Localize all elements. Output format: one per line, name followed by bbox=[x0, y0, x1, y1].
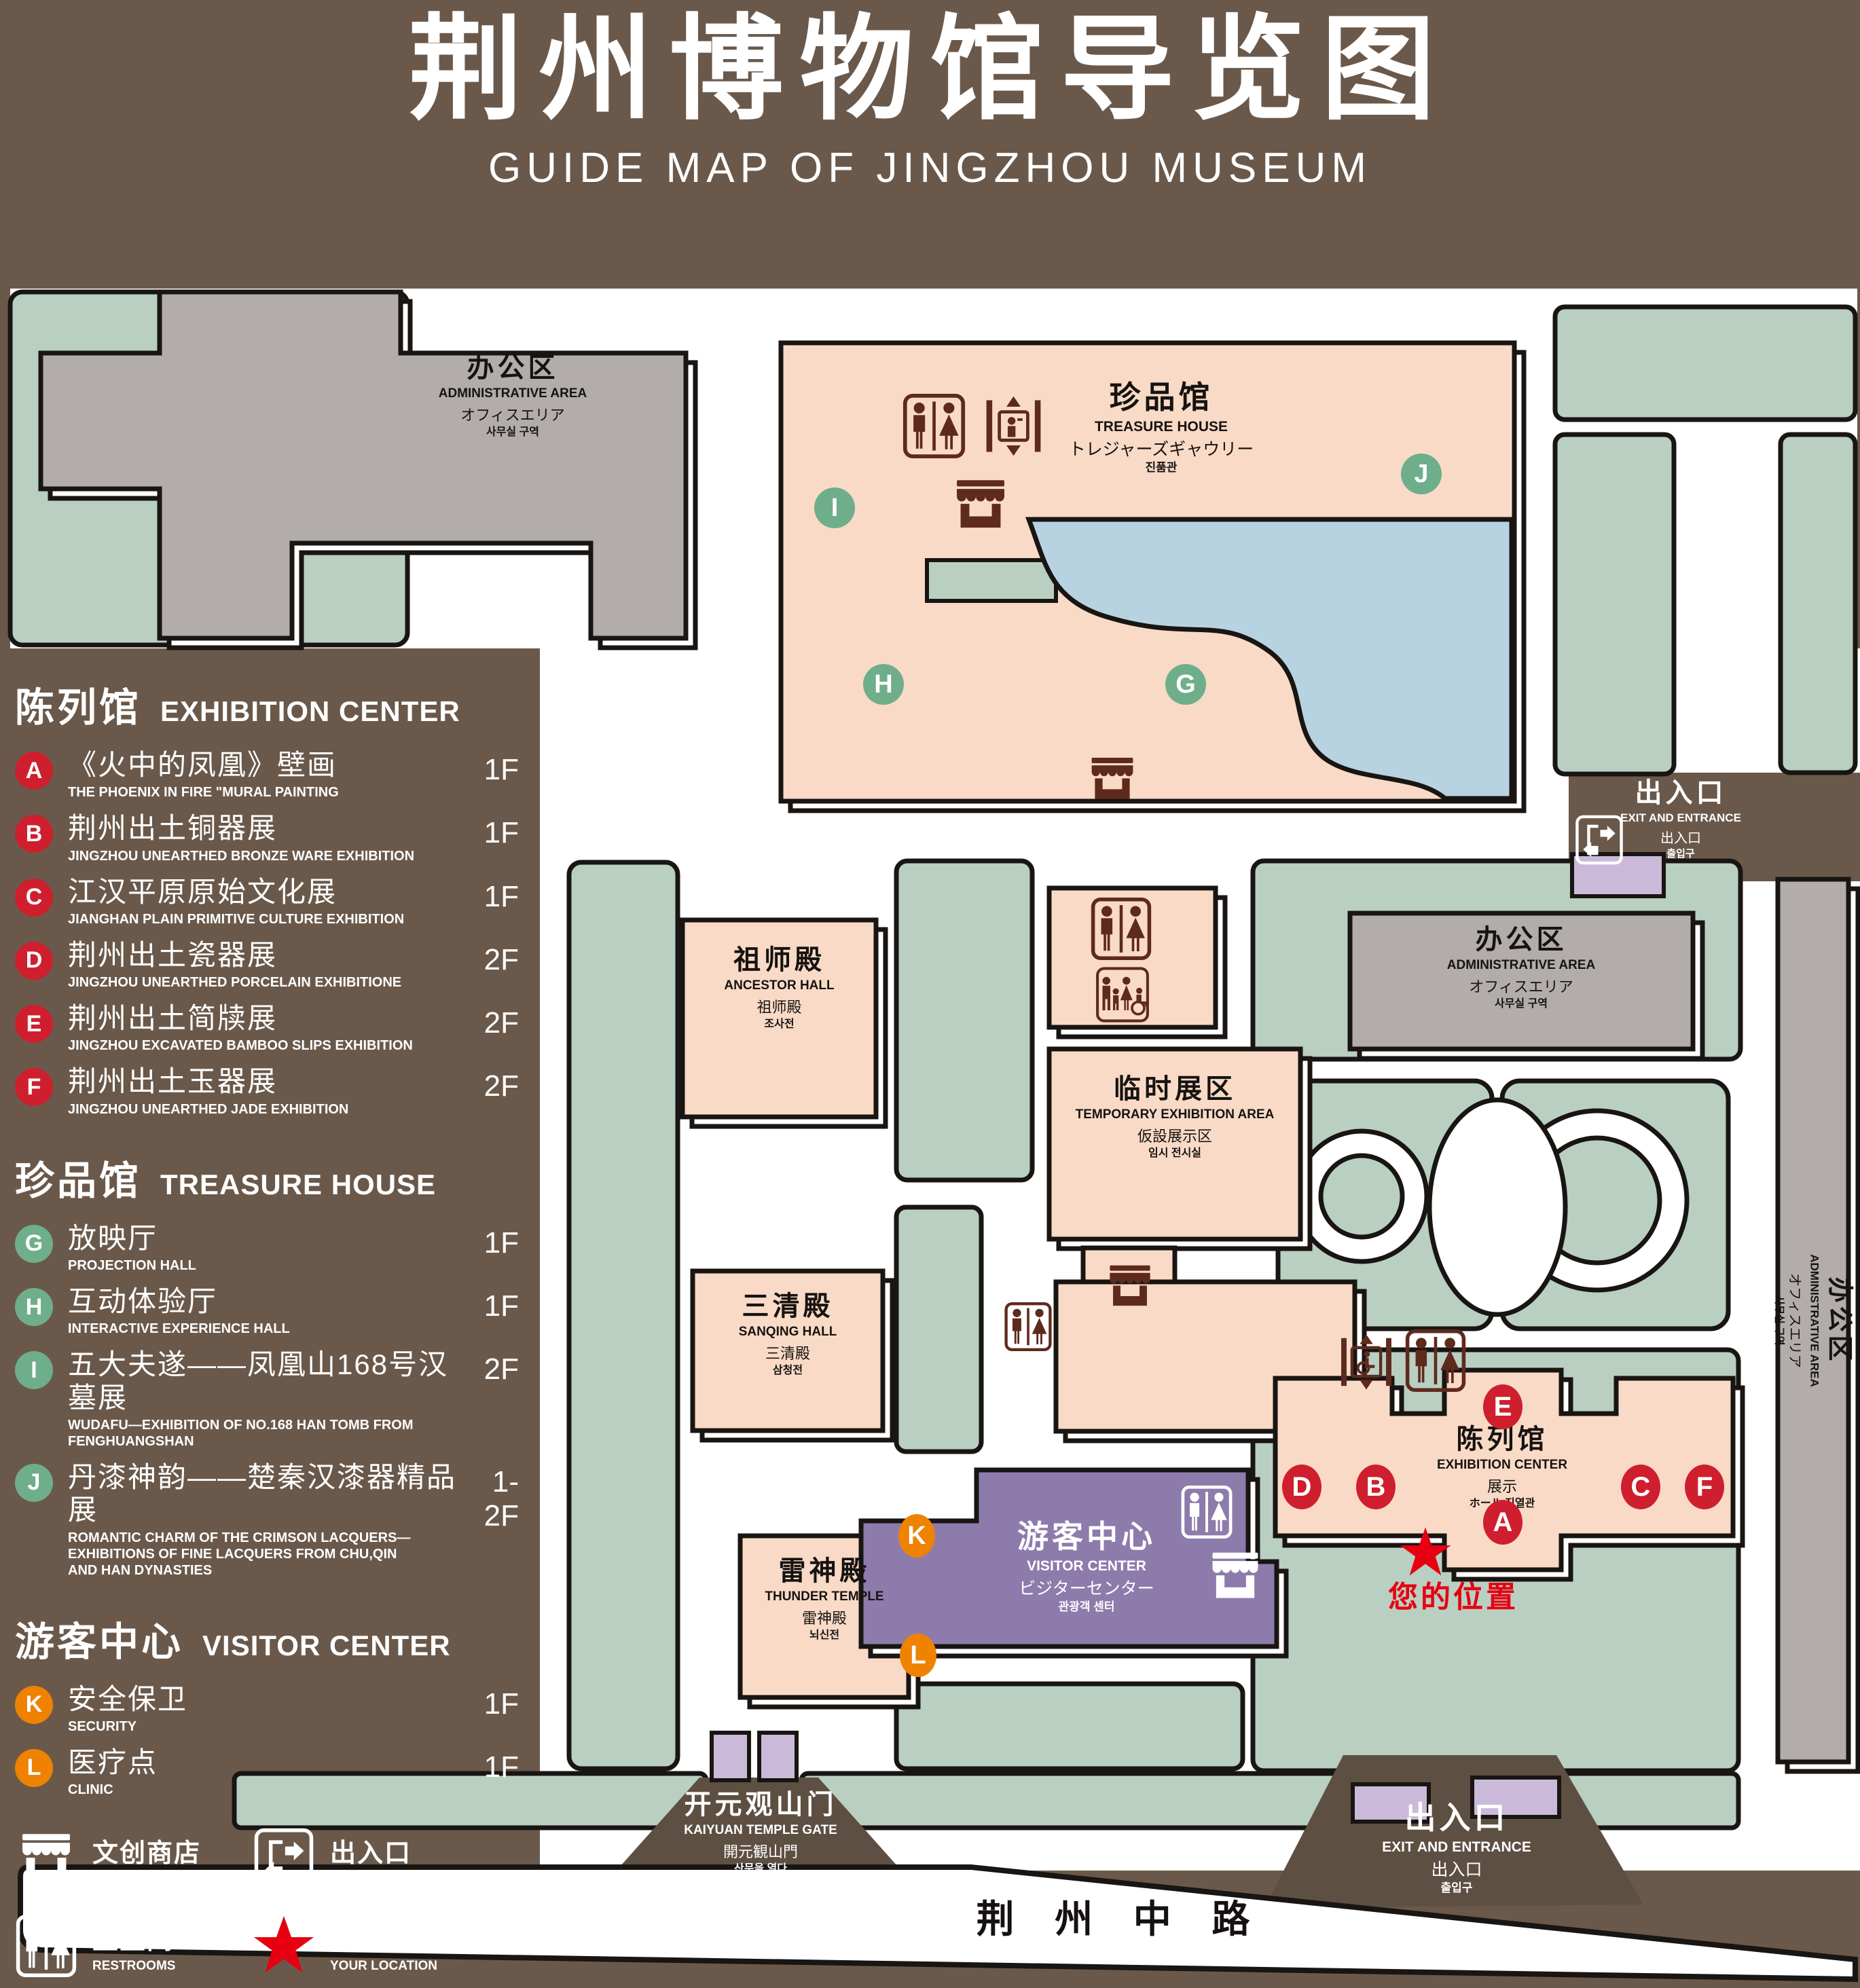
symbol-restrooms: 卫生间 RESTROOMS bbox=[15, 1915, 253, 1977]
marker-badge-L: L bbox=[15, 1749, 53, 1787]
map-marker-C: C bbox=[1621, 1465, 1660, 1509]
legend-item-I: I 五大夫遂——凤凰山168号汉墓展 WUDAFU—EXHIBITION OF … bbox=[15, 1348, 519, 1450]
map-marker-K: K bbox=[898, 1514, 935, 1558]
marker-badge-D: D bbox=[15, 942, 53, 980]
building-label-treasure-house: 珍品馆 TREASURE HOUSE トレジャーズギャウリー 진품관 bbox=[1019, 380, 1304, 475]
legend-item-A: A 《火中的凤凰》壁画 THE PHOENIX IN FIRE "MURAL P… bbox=[15, 749, 519, 800]
store-icon bbox=[1104, 1260, 1156, 1313]
family-restroom-icon bbox=[1095, 967, 1150, 1023]
building-label-admin-east: 办公区 ADMINISTRATIVE AREA オフィスエリア 사무실 구역 bbox=[1379, 925, 1664, 1010]
building-label-thunder-temple: 雷神殿 THUNDER TEMPLE 雷神殿 뇌신전 bbox=[737, 1556, 911, 1642]
accessible-elevator-icon bbox=[1336, 1332, 1396, 1392]
legend-item-E: E 荆州出土简牍展 JINGZHOU EXCAVATED BAMBOO SLIP… bbox=[15, 1002, 519, 1054]
marker-badge-K: K bbox=[15, 1686, 53, 1724]
symbol-store: 文创商店 STORE bbox=[15, 1828, 253, 1890]
map-marker-J: J bbox=[1401, 454, 1442, 494]
legend-section-visitor-center: 游客中心 VISITOR CENTER bbox=[15, 1610, 519, 1667]
restroom-icon bbox=[1090, 898, 1152, 960]
legend-item-H: H 互动体验厅 INTERACTIVE EXPERIENCE HALL 1F bbox=[15, 1285, 519, 1337]
exit-icon bbox=[1574, 815, 1624, 865]
marker-badge-F: F bbox=[15, 1068, 53, 1106]
your-location-label: 您的位置 bbox=[1331, 1572, 1575, 1616]
map-marker-E: E bbox=[1483, 1384, 1522, 1429]
symbol-your-location: 您的位置 YOUR LOCATION bbox=[253, 1915, 519, 1977]
building-label-sanqing-hall: 三清殿 SANQING HALL 三清殿 삼청전 bbox=[687, 1291, 888, 1377]
exit-icon bbox=[253, 1828, 315, 1890]
elevator-icon bbox=[981, 394, 1046, 458]
map-marker-H: H bbox=[863, 664, 904, 705]
marker-badge-G: G bbox=[15, 1225, 53, 1263]
legend-item-G: G 放映厅 PROJECTION HALL 1F bbox=[15, 1222, 519, 1274]
building-label-admin-east-strip: 办公区 ADMINISTRATIVE AREA オフィスエリア 사무실 구역 bbox=[1778, 879, 1848, 1762]
legend-item-B: B 荆州出土铜器展 JINGZHOU UNEARTHED BRONZE WARE… bbox=[15, 812, 519, 864]
guide-map-poster: 荆州博物馆导览图 GUIDE MAP OF JINGZHOU MUSEUM bbox=[0, 0, 1860, 1988]
legend-item-K: K 安全保卫 SECURITY 1F bbox=[15, 1683, 519, 1735]
legend-item-J: J 丹漆神韵——楚秦汉漆器精品展 ROMANTIC CHARM OF THE C… bbox=[15, 1461, 519, 1579]
building-label-exhibition-center: 陈列馆 EXHIBITION CENTER 展示 ホール 진열관 bbox=[1366, 1424, 1638, 1510]
store-icon bbox=[1205, 1547, 1265, 1606]
legend-item-F: F 荆州出土玉器展 JINGZHOU UNEARTHED JADE EXHIBI… bbox=[15, 1065, 519, 1117]
legend-item-D: D 荆州出土瓷器展 JINGZHOU UNEARTHED PORCELAIN E… bbox=[15, 939, 519, 991]
map-marker-I: I bbox=[814, 487, 855, 528]
restroom-icon bbox=[15, 1915, 77, 1977]
restroom-icon bbox=[1404, 1329, 1467, 1392]
restroom-icon bbox=[1180, 1486, 1233, 1539]
building-label-ancestor-hall: 祖师殿 ANCESTOR HALL 祖师殿 조사전 bbox=[676, 945, 883, 1031]
legend-item-L: L 医疗点 CLINIC 1F bbox=[15, 1746, 519, 1798]
marker-badge-I: I bbox=[15, 1351, 53, 1389]
marker-badge-E: E bbox=[15, 1005, 53, 1043]
marker-badge-B: B bbox=[15, 815, 53, 853]
store-icon bbox=[15, 1828, 77, 1890]
legend-panel: 陈列馆 EXHIBITION CENTER A 《火中的凤凰》壁画 THE PH… bbox=[15, 676, 519, 1988]
map-marker-D: D bbox=[1282, 1465, 1321, 1509]
your-location-star-icon bbox=[253, 1915, 315, 1977]
road-label: 荆 州 中 路 bbox=[903, 1889, 1338, 1944]
store-icon bbox=[949, 474, 1012, 536]
marker-badge-J: J bbox=[15, 1464, 53, 1502]
your-location-star-icon bbox=[1399, 1526, 1452, 1579]
map-marker-F: F bbox=[1685, 1465, 1724, 1509]
building-label-admin-nw: 办公区 ADMINISTRATIVE AREA オフィスエリア 사무실 구역 bbox=[370, 353, 655, 439]
legend-section-exhibition-center: 陈列馆 EXHIBITION CENTER bbox=[15, 676, 519, 733]
marker-badge-H: H bbox=[15, 1288, 53, 1326]
symbol-exit: 出入口 EXIT AND ENTRANCE bbox=[253, 1828, 519, 1890]
entrance-label-south: 出入口 EXIT AND ENTRANCE 出入口 출입구 bbox=[1351, 1801, 1562, 1895]
building-label-kaiyuan-gate: 开元观山门 KAIYUAN TEMPLE GATE 開元観山門 산문을 열다 bbox=[652, 1790, 869, 1875]
map-marker-B: B bbox=[1356, 1465, 1396, 1509]
store-icon bbox=[1085, 752, 1139, 807]
marker-badge-A: A bbox=[15, 752, 53, 790]
restroom-icon bbox=[902, 394, 966, 458]
legend-section-treasure-house: 珍品馆 TREASURE HOUSE bbox=[15, 1149, 519, 1206]
map-marker-L: L bbox=[900, 1634, 936, 1677]
building-name: 办公区 bbox=[467, 353, 559, 383]
legend-item-C: C 江汉平原原始文化展 JIANGHAN PLAIN PRIMITIVE CUL… bbox=[15, 876, 519, 927]
map-marker-G: G bbox=[1165, 664, 1206, 705]
marker-badge-C: C bbox=[15, 879, 53, 917]
restroom-icon bbox=[1004, 1302, 1053, 1351]
map-marker-A: A bbox=[1483, 1500, 1522, 1545]
building-label-temporary-exhibition: 临时展区 TEMPORARY EXHIBITION AREA 仮設展示区 임시 … bbox=[1053, 1074, 1297, 1160]
symbol-legend: 文创商店 STORE 出入口 EXIT AND ENTRANCE 卫生间 RES… bbox=[15, 1828, 519, 1988]
